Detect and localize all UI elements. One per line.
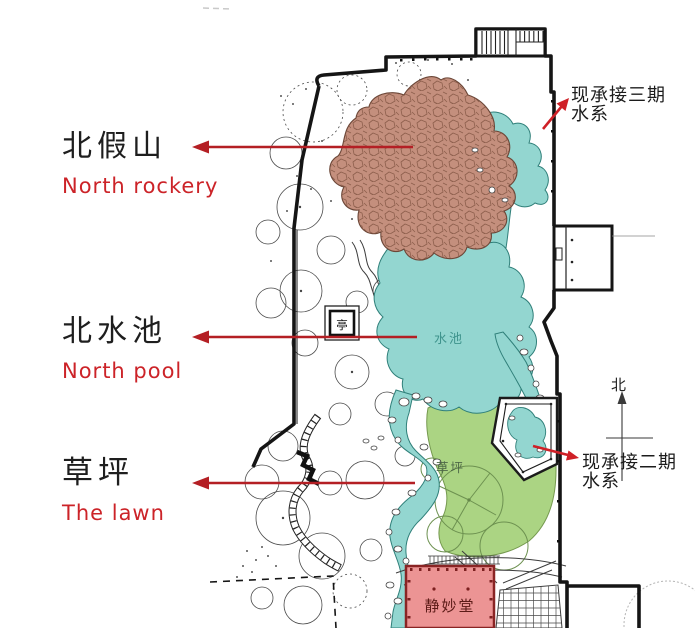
legend-lawn: 草坪 The lawn	[62, 456, 165, 525]
legend-pool-en: North pool	[62, 359, 182, 383]
legend-pool: 北水池 North pool	[62, 315, 182, 383]
legend-lawn-zh: 草坪	[62, 456, 165, 490]
hall-label: 静妙堂	[424, 597, 475, 615]
phase2-text-line2: 水系	[582, 471, 620, 492]
xuan-structure	[554, 226, 655, 290]
phase3-text-line1: 现承接三期	[571, 85, 666, 106]
north-gate-structure	[476, 29, 545, 56]
compass-north-label: 北	[611, 376, 626, 394]
jingmiao-hall: 静妙堂	[406, 566, 494, 628]
lawn-inline-label: 草坪	[436, 460, 465, 475]
phase2-text-line1: 现承接二期	[582, 452, 677, 473]
north-rockery-region	[330, 77, 517, 260]
faint-tree-sketch	[624, 581, 695, 628]
garden-plan-figure: 静妙堂 亭 水池 草坪	[0, 0, 695, 628]
pavilion-label: 亭	[336, 318, 348, 332]
pavilion: 亭	[325, 306, 359, 340]
rockery-texture	[330, 77, 517, 260]
legend-pool-zh: 北水池	[62, 315, 182, 348]
legend-rockery-zh: 北假山	[62, 130, 218, 163]
phase3-callout: 现承接三期 水系	[543, 85, 666, 129]
legend-lawn-en: The lawn	[62, 501, 165, 525]
phase3-text-line2: 水系	[571, 104, 609, 125]
bridge-battlement	[297, 452, 319, 484]
stray-mark	[203, 8, 232, 9]
legend-rockery-en: North rockery	[62, 174, 218, 198]
paved-courtyard	[494, 585, 564, 628]
pool-inline-label: 水池	[434, 332, 464, 347]
stepped-path	[293, 416, 340, 568]
legend-rockery: 北假山 North rockery	[62, 130, 218, 198]
